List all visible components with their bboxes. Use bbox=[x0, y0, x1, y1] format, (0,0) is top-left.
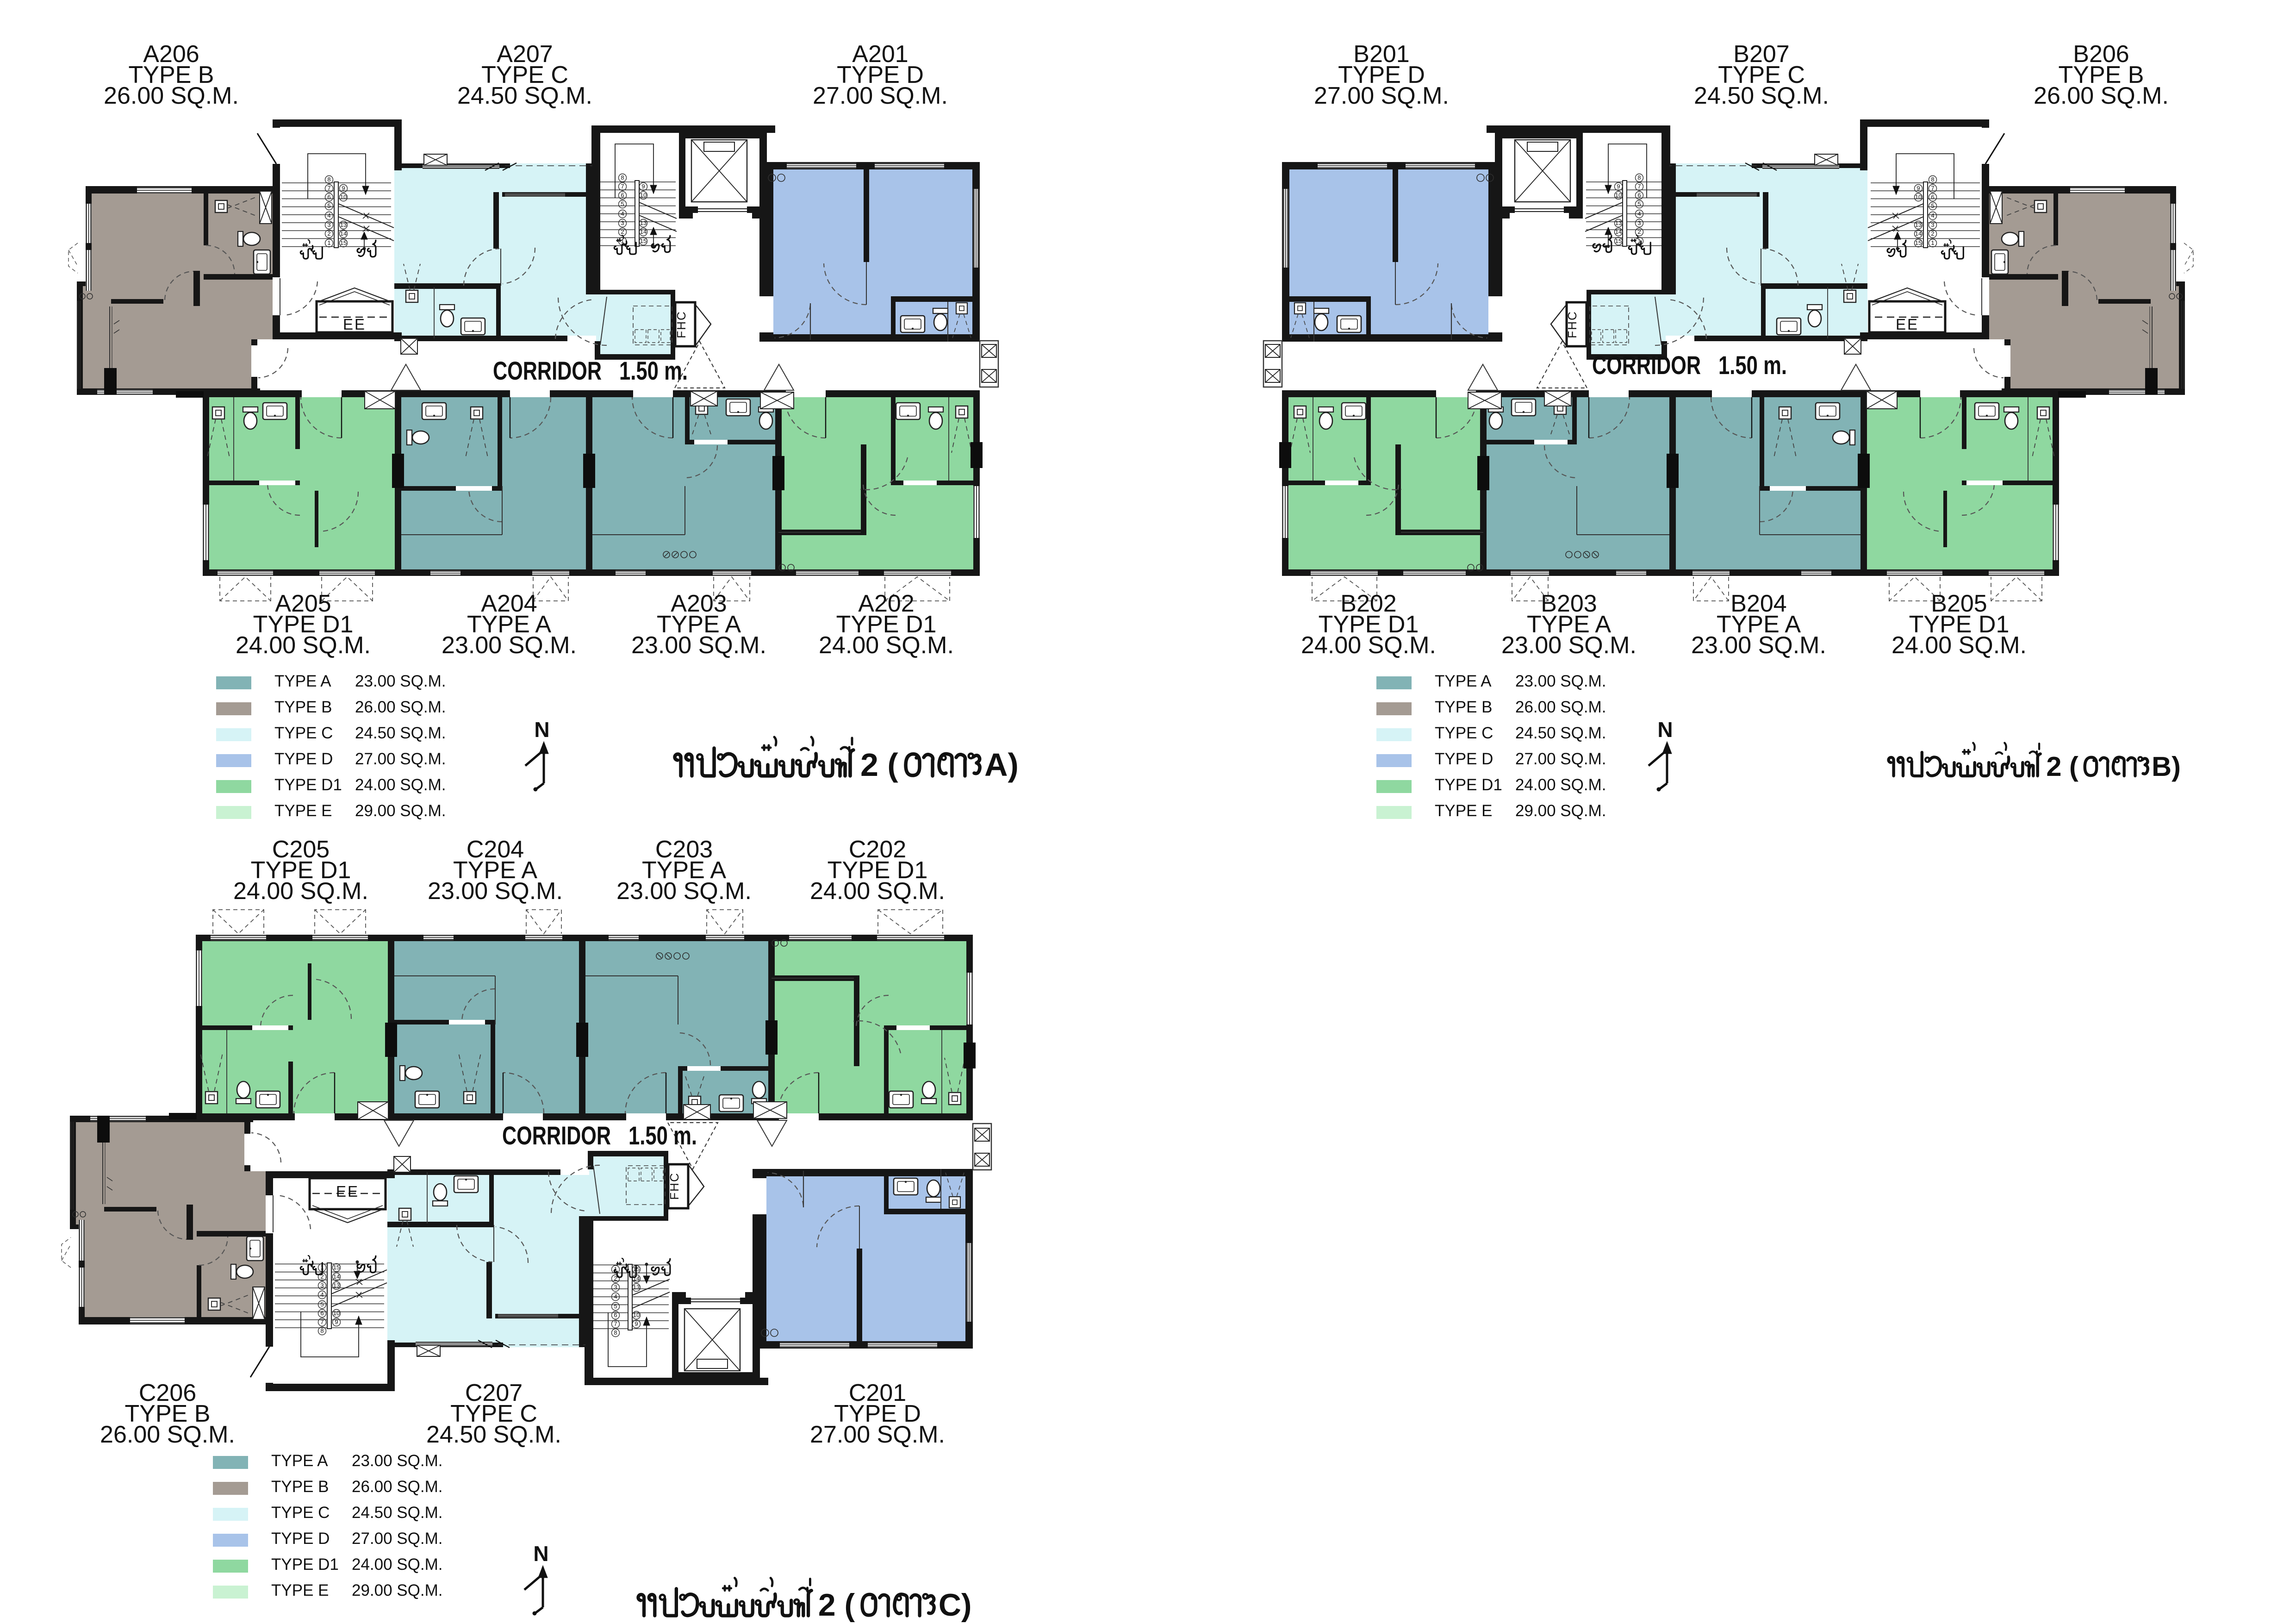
svg-text:FHC: FHC bbox=[674, 311, 688, 338]
svg-text:2 (: 2 ( bbox=[818, 1588, 855, 1623]
svg-text:EE: EE bbox=[1896, 316, 1919, 333]
svg-text:9: 9 bbox=[635, 1320, 638, 1327]
svg-text:7: 7 bbox=[320, 1318, 324, 1325]
svg-text:14: 14 bbox=[1615, 228, 1622, 235]
svg-text:FHC: FHC bbox=[667, 1172, 681, 1199]
svg-text:23.00 SQ.M.: 23.00 SQ.M. bbox=[442, 632, 577, 659]
svg-text:13: 13 bbox=[333, 1282, 340, 1289]
svg-text:23.00 SQ.M.: 23.00 SQ.M. bbox=[428, 878, 563, 905]
svg-text:4: 4 bbox=[614, 1293, 617, 1300]
svg-text:23.00 SQ.M.: 23.00 SQ.M. bbox=[1691, 632, 1826, 659]
svg-text:14: 14 bbox=[1915, 230, 1922, 237]
svg-text:2: 2 bbox=[1637, 228, 1641, 235]
svg-text:5: 5 bbox=[320, 1301, 324, 1308]
svg-text:23.00 SQ.M.: 23.00 SQ.M. bbox=[616, 878, 752, 905]
svg-text:26.00 SQ.M.: 26.00 SQ.M. bbox=[100, 1421, 235, 1448]
svg-text:13: 13 bbox=[640, 219, 647, 226]
svg-text:8: 8 bbox=[614, 1329, 617, 1336]
svg-text:27.00 SQ.M.: 27.00 SQ.M. bbox=[1314, 82, 1449, 109]
svg-text:7: 7 bbox=[1637, 183, 1641, 190]
svg-text:8: 8 bbox=[1931, 176, 1934, 183]
svg-text:27.00 SQ.M.: 27.00 SQ.M. bbox=[810, 1421, 945, 1448]
svg-text:3: 3 bbox=[1637, 219, 1641, 226]
svg-text:B): B) bbox=[2152, 751, 2181, 782]
svg-text:5: 5 bbox=[621, 200, 624, 207]
svg-text:24.00 SQ.M.: 24.00 SQ.M. bbox=[819, 632, 954, 659]
svg-text:2 (: 2 ( bbox=[860, 747, 898, 783]
svg-text:2: 2 bbox=[614, 1275, 617, 1282]
svg-text:2: 2 bbox=[621, 228, 624, 235]
svg-text:10: 10 bbox=[333, 1310, 340, 1317]
svg-text:15: 15 bbox=[340, 239, 347, 246]
svg-text:5: 5 bbox=[614, 1303, 617, 1310]
svg-text:7: 7 bbox=[621, 183, 624, 190]
svg-text:10: 10 bbox=[1915, 194, 1922, 200]
svg-text:14: 14 bbox=[633, 1275, 640, 1282]
svg-text:3: 3 bbox=[1931, 221, 1934, 228]
svg-text:3: 3 bbox=[621, 219, 624, 226]
svg-text:1: 1 bbox=[621, 237, 624, 244]
svg-text:27.00 SQ.M.: 27.00 SQ.M. bbox=[813, 82, 948, 109]
svg-text:3: 3 bbox=[320, 1282, 324, 1289]
svg-text:26.00 SQ.M.: 26.00 SQ.M. bbox=[104, 82, 239, 109]
svg-text:23.00 SQ.M.: 23.00 SQ.M. bbox=[1501, 632, 1636, 659]
svg-text:1.50 m.: 1.50 m. bbox=[1718, 350, 1787, 380]
svg-text:10: 10 bbox=[633, 1312, 640, 1318]
svg-text:1: 1 bbox=[1931, 239, 1934, 246]
svg-text:6: 6 bbox=[327, 194, 330, 200]
svg-text:1: 1 bbox=[327, 239, 330, 246]
svg-text:24.50 SQ.M.: 24.50 SQ.M. bbox=[457, 82, 592, 109]
svg-text:15: 15 bbox=[633, 1266, 640, 1273]
svg-text:EE: EE bbox=[343, 316, 366, 333]
svg-text:9: 9 bbox=[641, 183, 645, 190]
svg-text:3: 3 bbox=[327, 221, 330, 228]
svg-text:24.50 SQ.M.: 24.50 SQ.M. bbox=[1694, 82, 1829, 109]
svg-text:C): C) bbox=[939, 1588, 972, 1623]
svg-text:CORRIDOR: CORRIDOR bbox=[1592, 350, 1701, 380]
svg-text:23.00 SQ.M.: 23.00 SQ.M. bbox=[631, 632, 766, 659]
svg-text:2: 2 bbox=[1931, 230, 1934, 237]
svg-text:6: 6 bbox=[614, 1312, 617, 1318]
svg-text:13: 13 bbox=[340, 221, 347, 228]
svg-text:15: 15 bbox=[1615, 237, 1622, 244]
svg-text:1.50 m.: 1.50 m. bbox=[628, 1121, 697, 1150]
svg-text:9: 9 bbox=[335, 1318, 338, 1325]
svg-text:4: 4 bbox=[1637, 210, 1641, 217]
svg-text:6: 6 bbox=[320, 1310, 324, 1317]
svg-text:26.00 SQ.M.: 26.00 SQ.M. bbox=[2034, 82, 2169, 109]
svg-text:10: 10 bbox=[1615, 192, 1622, 199]
svg-text:8: 8 bbox=[1637, 174, 1641, 181]
svg-text:4: 4 bbox=[327, 212, 330, 219]
svg-text:7: 7 bbox=[614, 1320, 617, 1327]
svg-text:9: 9 bbox=[1617, 183, 1620, 190]
svg-text:9: 9 bbox=[342, 185, 345, 192]
svg-text:6: 6 bbox=[1637, 192, 1641, 199]
svg-text:3: 3 bbox=[614, 1284, 617, 1291]
svg-text:A): A) bbox=[984, 747, 1019, 783]
svg-text:EE: EE bbox=[336, 1183, 359, 1200]
svg-text:14: 14 bbox=[340, 230, 347, 237]
svg-text:7: 7 bbox=[1931, 185, 1934, 192]
svg-text:CORRIDOR: CORRIDOR bbox=[493, 356, 602, 385]
svg-text:24.00 SQ.M.: 24.00 SQ.M. bbox=[810, 878, 945, 905]
svg-text:4: 4 bbox=[621, 210, 624, 217]
svg-text:4: 4 bbox=[320, 1291, 324, 1298]
svg-text:13: 13 bbox=[633, 1284, 640, 1291]
svg-text:1.50 m.: 1.50 m. bbox=[619, 356, 688, 385]
svg-text:24.50 SQ.M.: 24.50 SQ.M. bbox=[426, 1421, 561, 1448]
svg-text:2 (: 2 ( bbox=[2046, 751, 2078, 782]
svg-text:5: 5 bbox=[327, 202, 330, 209]
svg-text:5: 5 bbox=[1637, 200, 1641, 207]
svg-text:24.00 SQ.M.: 24.00 SQ.M. bbox=[1301, 632, 1436, 659]
svg-text:10: 10 bbox=[340, 194, 347, 200]
svg-text:7: 7 bbox=[327, 185, 330, 192]
svg-text:CORRIDOR: CORRIDOR bbox=[502, 1121, 611, 1150]
svg-text:8: 8 bbox=[320, 1327, 324, 1334]
svg-text:4: 4 bbox=[1931, 212, 1934, 219]
svg-text:15: 15 bbox=[1915, 239, 1922, 246]
svg-text:6: 6 bbox=[621, 192, 624, 199]
svg-text:15: 15 bbox=[640, 237, 647, 244]
svg-text:2: 2 bbox=[320, 1273, 324, 1280]
svg-text:13: 13 bbox=[1615, 219, 1622, 226]
svg-text:5: 5 bbox=[1931, 202, 1934, 209]
svg-text:8: 8 bbox=[327, 176, 330, 183]
svg-text:9: 9 bbox=[1916, 185, 1920, 192]
svg-text:1: 1 bbox=[320, 1264, 324, 1271]
svg-text:24.00 SQ.M.: 24.00 SQ.M. bbox=[236, 632, 371, 659]
svg-text:24.00 SQ.M.: 24.00 SQ.M. bbox=[233, 878, 368, 905]
svg-text:8: 8 bbox=[621, 174, 624, 181]
svg-text:14: 14 bbox=[640, 228, 647, 235]
svg-text:13: 13 bbox=[1915, 221, 1922, 228]
svg-text:6: 6 bbox=[1931, 194, 1934, 200]
svg-text:24.00 SQ.M.: 24.00 SQ.M. bbox=[1892, 632, 2027, 659]
svg-text:1: 1 bbox=[1637, 237, 1641, 244]
svg-text:2: 2 bbox=[327, 230, 330, 237]
svg-text:15: 15 bbox=[333, 1264, 340, 1271]
svg-text:14: 14 bbox=[333, 1273, 340, 1280]
svg-text:10: 10 bbox=[640, 192, 647, 199]
svg-text:FHC: FHC bbox=[1565, 311, 1579, 338]
svg-text:1: 1 bbox=[614, 1266, 617, 1273]
